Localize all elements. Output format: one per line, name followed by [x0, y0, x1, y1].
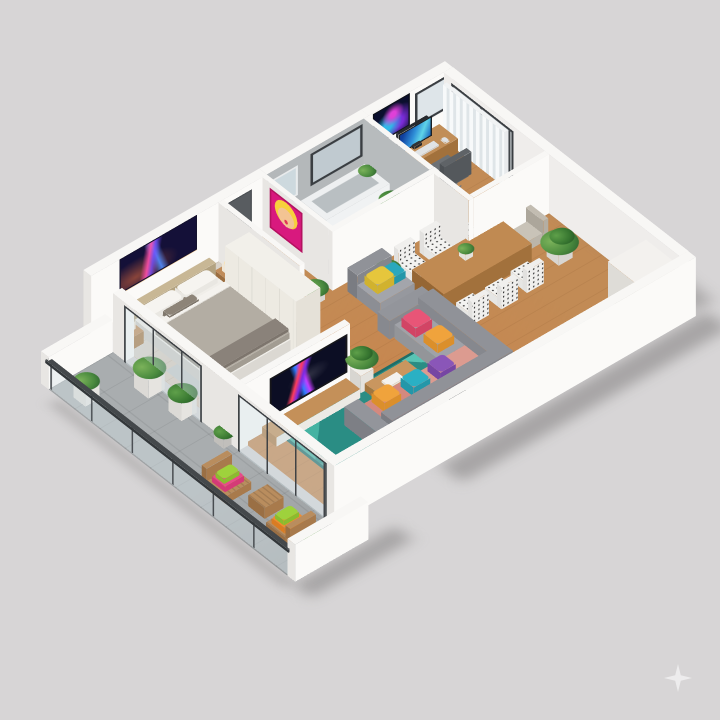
- floorplan-render-canvas: [0, 0, 720, 720]
- sparkle-watermark-icon: [664, 664, 692, 692]
- balcony-parapet-south-west: [287, 539, 295, 582]
